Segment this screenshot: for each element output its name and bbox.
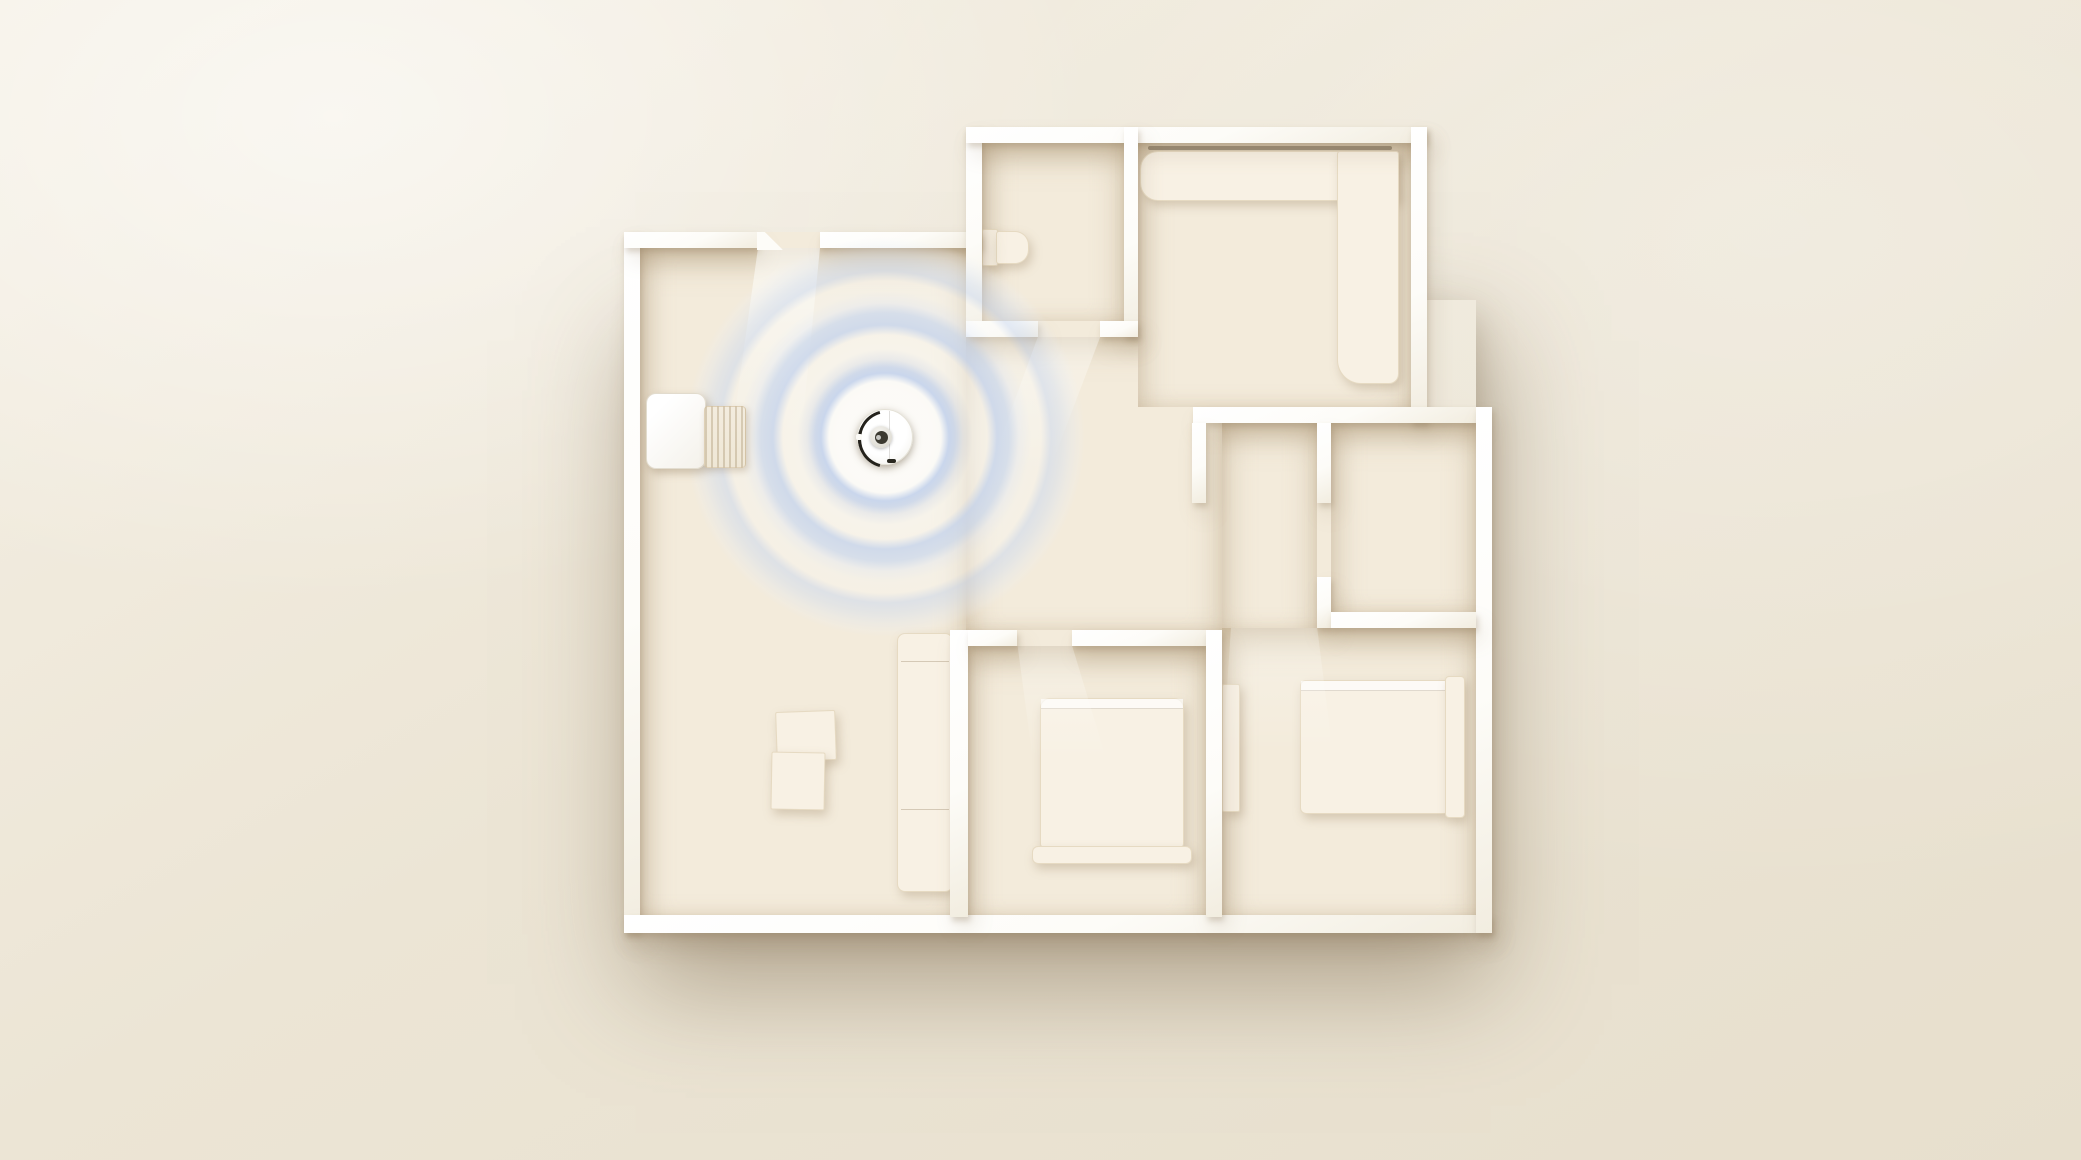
wall-living-bedroom1-divider xyxy=(950,630,968,917)
wall-kitchen-right xyxy=(1411,127,1427,423)
wall-bathroom-bottom-b xyxy=(1100,321,1138,337)
wall-bathroom-left xyxy=(966,127,982,337)
wall-living-top-a xyxy=(624,232,757,248)
closet-floor xyxy=(1331,423,1476,612)
wall-bedroom1-top-b xyxy=(1072,630,1206,646)
wall-mid-top xyxy=(1193,407,1476,423)
coffee-table-2 xyxy=(770,752,825,811)
wall-outer-right-lower xyxy=(1476,407,1492,933)
bedroom1-door-gap-floor xyxy=(1017,630,1072,646)
wall-bedroom1-top-a xyxy=(968,630,1017,646)
wall-outer-top xyxy=(966,127,1427,143)
wall-bathroom-bottom-a xyxy=(966,321,1038,337)
lidar-turret-icon xyxy=(870,426,892,448)
lidar-turret-core xyxy=(875,431,888,444)
counter-shadow-seam xyxy=(1148,146,1392,150)
bedroom1-bed-footboard xyxy=(1032,846,1192,864)
wall-bathroom-right xyxy=(1124,127,1138,337)
robot-rear-sensor-notch xyxy=(887,459,896,463)
toilet-bowl xyxy=(996,231,1029,264)
kitchen-opening-floor xyxy=(1138,407,1193,423)
wall-living-top-b xyxy=(820,232,982,248)
robot-bumper-gap xyxy=(856,434,862,440)
bathroom-door-gap-floor xyxy=(1038,321,1100,337)
floorplan-render xyxy=(0,0,2081,1160)
light-beam-bedroom2-door xyxy=(1222,628,1334,763)
charging-dock xyxy=(646,393,706,469)
wall-outer-bottom xyxy=(624,915,1492,933)
lidar-turret-pip xyxy=(876,435,881,440)
robot-vacuum xyxy=(857,409,913,465)
wall-closet-bottom xyxy=(1331,612,1476,628)
wall-outer-left xyxy=(624,232,640,933)
kitchen-counter-side xyxy=(1337,151,1399,384)
living-sofa xyxy=(897,633,953,892)
wall-hall-stub xyxy=(1192,423,1206,503)
hallway-floor xyxy=(1222,423,1317,630)
wall-closet-left-top xyxy=(1317,423,1331,503)
bedroom2-bed-headrail xyxy=(1445,676,1465,818)
dock-ramp xyxy=(704,406,746,468)
wall-closet-left-bottom xyxy=(1317,577,1331,628)
wall-bedroom1-right xyxy=(1206,630,1222,917)
